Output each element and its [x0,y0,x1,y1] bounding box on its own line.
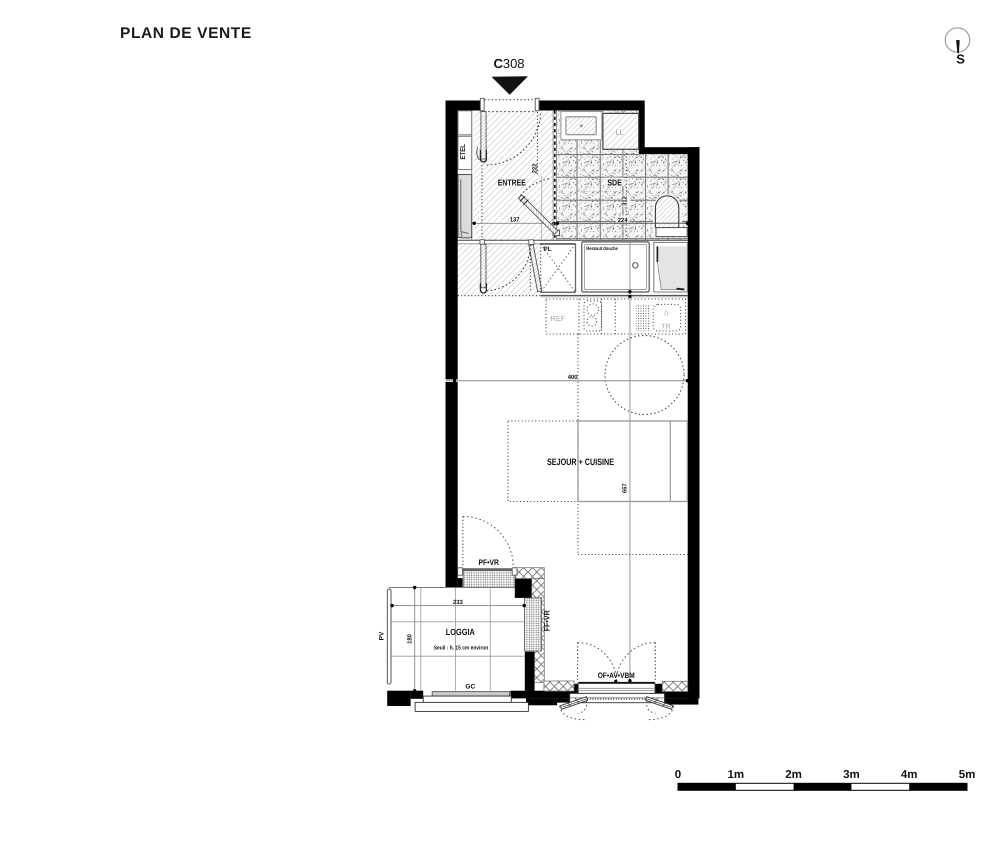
svg-text:222: 222 [531,163,538,173]
svg-text:(): () [664,310,668,317]
svg-text:PLAN DE VENTE: PLAN DE VENTE [120,25,252,42]
svg-text:C308: C308 [493,56,524,71]
svg-text:ENTREE: ENTREE [498,177,526,187]
svg-text:Seuil : h. 15 cm environ: Seuil : h. 15 cm environ [434,644,489,651]
svg-text:SDE: SDE [607,177,622,187]
svg-text:ETEL: ETEL [460,143,467,159]
svg-text:GC: GC [465,683,475,690]
svg-text:LOGGIA: LOGGIA [446,627,475,637]
svg-text:PL: PL [543,246,551,253]
svg-text:400: 400 [568,374,578,381]
svg-text:5m: 5m [959,769,976,781]
svg-text:1m: 1m [727,769,744,781]
svg-text:667: 667 [621,483,628,493]
svg-text:3m: 3m [843,769,860,781]
svg-text:TR: TR [661,323,670,330]
svg-text:FF•VR: FF•VR [542,610,551,631]
svg-text:S: S [956,51,965,66]
svg-text:180: 180 [407,634,414,644]
svg-text:LL: LL [615,128,623,137]
svg-text:137: 137 [510,217,520,224]
svg-text:0: 0 [675,769,681,781]
svg-text:SEJOUR + CUISINE: SEJOUR + CUISINE [547,457,614,467]
svg-text:312: 312 [621,196,628,206]
svg-text:4m: 4m [901,769,918,781]
svg-text:PV: PV [379,631,386,640]
svg-text:Ressaut douche: Ressaut douche [586,246,618,252]
svg-text:REF: REF [551,314,566,323]
svg-text:2m: 2m [785,769,802,781]
svg-text:233: 233 [453,599,463,606]
svg-text:224: 224 [618,217,628,224]
svg-text:PF•VR: PF•VR [478,558,499,567]
